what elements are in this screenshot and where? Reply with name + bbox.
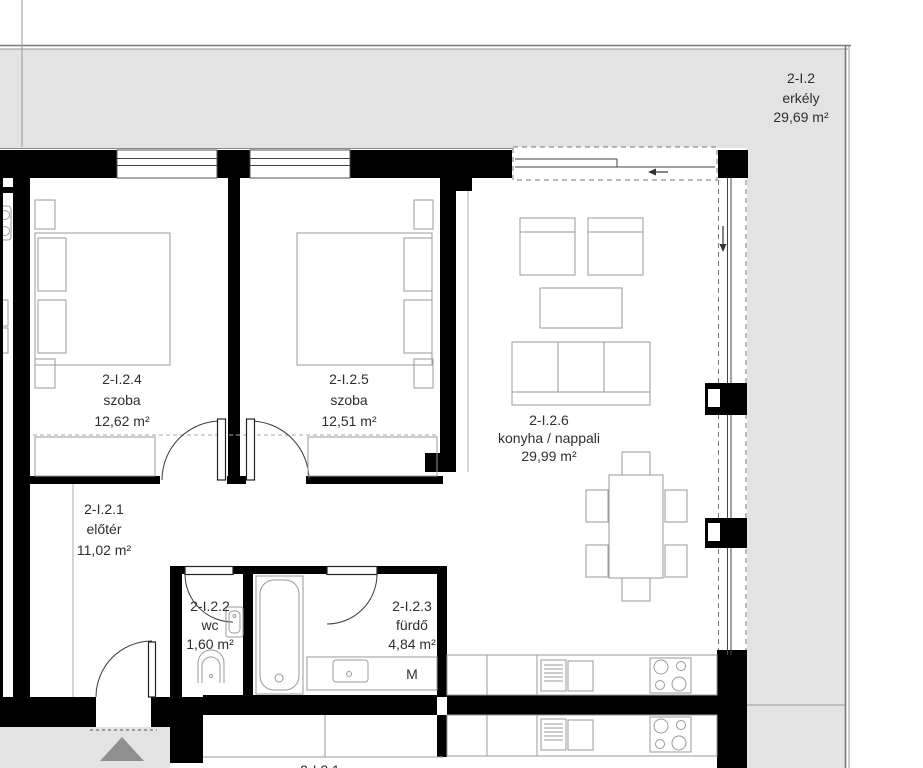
wall-bottom-kitchen: [447, 695, 717, 715]
bathtub-basin: [260, 580, 299, 690]
entry-door-jamb-right: [151, 697, 157, 727]
armchair: [520, 218, 575, 275]
bath-sink: [333, 660, 368, 682]
toilet-bowl: [202, 657, 220, 683]
room-area: 12,51 m²: [321, 413, 377, 429]
dining-chair: [622, 452, 650, 475]
wall-left: [13, 178, 30, 697]
wall-wc-left: [170, 566, 182, 697]
balcony-name: erkély: [782, 90, 819, 106]
dining-chair: [586, 490, 608, 522]
door-arc-entry: [96, 641, 152, 697]
room-area: 29,99 m²: [521, 448, 577, 464]
wardrobe-bedroom2: [308, 437, 437, 476]
room-id: 2-I.2.1: [84, 501, 124, 517]
wall-top-pier: [217, 150, 250, 178]
label-adjacent-unit: 2-I.2.1: [300, 762, 340, 768]
dining-table: [609, 475, 663, 578]
sofa: [512, 342, 650, 405]
window-bedroom1: [117, 150, 217, 178]
nightstand: [35, 359, 55, 388]
wall-between-bedrooms: [228, 178, 240, 476]
room-name: szoba: [103, 392, 141, 408]
wall-neighbour-stub: [0, 187, 13, 193]
slide-down-arrow-head-icon: [720, 244, 727, 252]
balcony-right-area: [747, 148, 845, 768]
wall-bottom-center: [203, 695, 437, 715]
hob-burner: [656, 740, 665, 749]
wall-top-left: [0, 150, 117, 178]
room-id: 2-I.2.6: [529, 412, 569, 428]
wall-top-center: [350, 150, 512, 178]
hob-burner: [654, 719, 668, 733]
entry-door-jamb-left: [90, 697, 96, 727]
wall-bottom-entry-right: [157, 697, 170, 727]
pillow: [38, 300, 66, 353]
floor-plan-page: M 2-I.2 erkély 29,69 m² 2-I.2.4 szoba 12…: [0, 0, 923, 768]
wall-end-block: [425, 453, 456, 472]
balcony-area: 29,69 m²: [773, 109, 829, 125]
balcony-id: 2-I.2: [787, 70, 815, 86]
wall-wc-right: [243, 566, 253, 697]
label-bedroom1: 2-I.2.4 szoba 12,62 m²: [94, 371, 150, 429]
hob-burner: [656, 681, 665, 690]
corridor-area: [0, 727, 170, 768]
room-name: előtér: [86, 521, 121, 537]
wall-left-outer-line: [0, 178, 3, 697]
wall-column-lower-left: [170, 697, 203, 763]
glass-wall-pier-upper-notch: [708, 389, 720, 407]
pillow: [404, 238, 432, 291]
wall-between-doors: [227, 476, 246, 484]
door-leaf-bedroom2: [247, 419, 255, 480]
coffee-table: [540, 288, 622, 328]
label-wc: 2-I.2.2 wc 1,60 m²: [186, 598, 234, 652]
nightstand: [414, 359, 433, 388]
wall-bedroom2-living: [440, 178, 456, 472]
door-leaf-bath: [327, 567, 377, 575]
hob-burner: [672, 677, 686, 691]
hob-burner: [672, 736, 686, 750]
dining-chair: [665, 490, 687, 522]
label-living: 2-I.2.6 konyha / nappali 29,99 m²: [498, 412, 600, 464]
wall-pier-bottom-right: [717, 650, 747, 768]
room-name: fürdő: [396, 617, 428, 633]
sink-base-cabinet: [568, 720, 593, 750]
armchair: [588, 218, 643, 275]
wall-top-right-corner: [718, 150, 748, 178]
pillow: [404, 300, 432, 353]
wc-sink-drain: [233, 615, 236, 618]
room-id: 2-I.2.3: [392, 598, 432, 614]
room-area: 11,02 m²: [77, 542, 132, 558]
room-id: 2-I.2.4: [102, 371, 142, 387]
room-name: szoba: [330, 392, 368, 408]
sink-base-cabinet: [568, 661, 593, 691]
glass-wall-pier-lower-notch: [708, 523, 720, 541]
hob-burner: [677, 721, 686, 730]
label-bath: 2-I.2.3 fürdő 4,84 m²: [388, 598, 436, 652]
room-area: 12,62 m²: [94, 413, 150, 429]
wall-nub-top: [456, 178, 472, 191]
wall-column-lower-center: [437, 715, 447, 757]
hob-burner: [654, 660, 668, 674]
nightstand: [35, 200, 55, 229]
floor-plan-svg: M 2-I.2 erkély 29,69 m² 2-I.2.4 szoba 12…: [0, 0, 923, 768]
dining-chair: [665, 545, 687, 577]
wall-bedroom1-bottom: [30, 476, 160, 484]
room-name: wc: [200, 617, 218, 633]
room-area: 4,84 m²: [388, 636, 436, 652]
pillow: [38, 238, 66, 291]
door-arc-bedroom1: [162, 421, 221, 480]
wall-bath-top-right: [377, 566, 443, 574]
label-hall: 2-I.2.1 előtér 11,02 m²: [77, 501, 132, 558]
room-area: 1,60 m²: [186, 636, 234, 652]
sliding-door-top: [513, 147, 717, 180]
balcony-top-area: [0, 49, 845, 148]
door-leaf-bedroom1: [218, 419, 226, 480]
washing-machine-label: M: [406, 666, 418, 682]
bath-sink-drain: [347, 672, 352, 677]
nightstand: [414, 200, 433, 229]
wall-bottom-left: [0, 697, 90, 727]
dining-chair: [622, 578, 650, 601]
hob-burner: [677, 662, 686, 671]
room-id: 2-I.2.5: [329, 371, 369, 387]
bathtub: [256, 576, 303, 694]
label-bedroom2: 2-I.2.5 szoba 12,51 m²: [321, 371, 377, 429]
bed-bedroom1: [35, 233, 170, 365]
door-leaf-wc: [185, 567, 233, 575]
dining-chair: [586, 545, 608, 577]
door-leaf-entry: [149, 642, 156, 697]
bed-bedroom2: [297, 233, 432, 365]
toilet-drain: [210, 675, 213, 678]
door-arc-bedroom2: [250, 421, 309, 480]
door-arc-bath: [327, 574, 377, 624]
wall-bath-right: [437, 566, 447, 697]
room-name: konyha / nappali: [498, 430, 600, 446]
bathtub-drain: [275, 674, 283, 682]
room-id: 2-I.2.2: [190, 598, 230, 614]
window-bedroom2: [250, 150, 350, 178]
wardrobe-bedroom1: [35, 437, 155, 476]
wall-bedroom2-bottom: [306, 476, 443, 484]
